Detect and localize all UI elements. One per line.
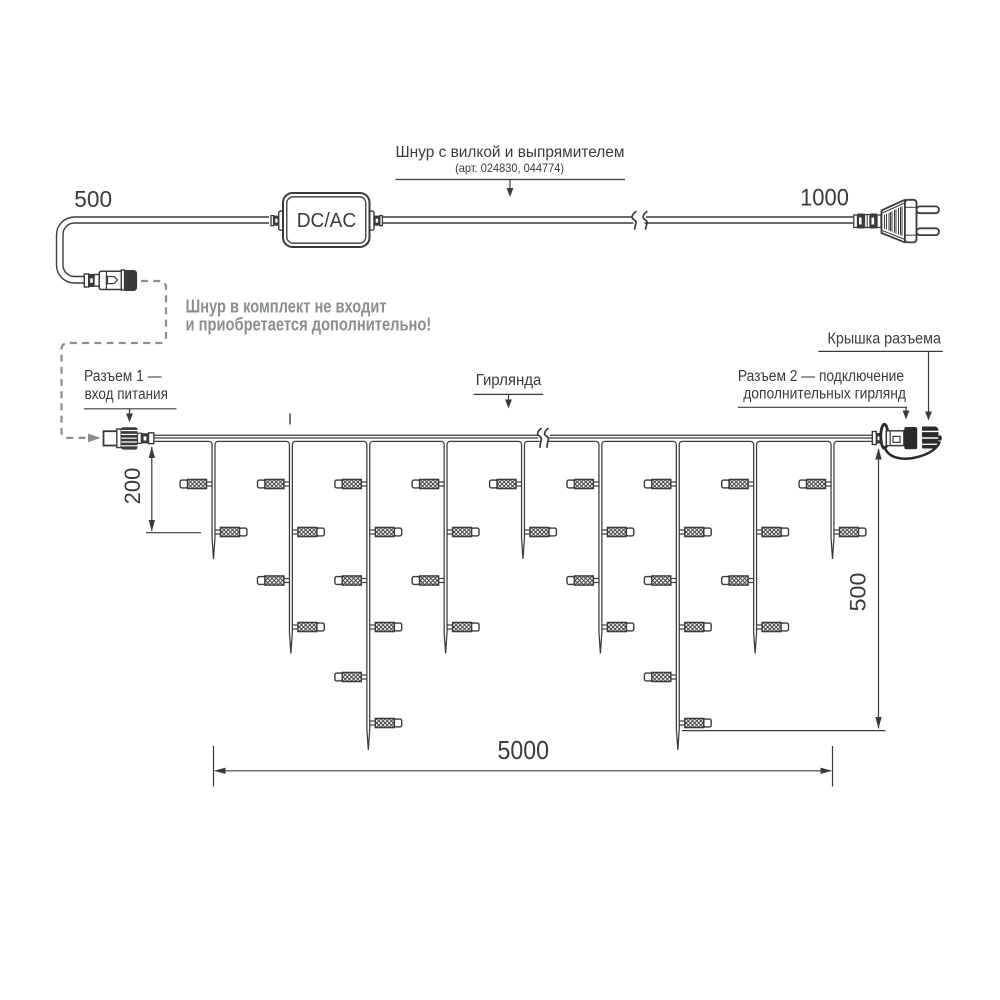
svg-text:Шнур в комплект не входит: Шнур в комплект не входит (186, 297, 387, 317)
svg-text:1000: 1000 (800, 184, 849, 211)
svg-text:Разъем 1 —: Разъем 1 — (84, 368, 162, 385)
svg-text:Гирлянда: Гирлянда (476, 372, 542, 389)
svg-text:и приобретается дополнительно!: и приобретается дополнительно! (186, 315, 432, 335)
svg-text:Крышка разъема: Крышка разъема (828, 330, 942, 347)
svg-text:дополнительных гирлянд: дополнительных гирлянд (743, 386, 906, 403)
svg-text:500: 500 (74, 186, 112, 212)
svg-text:Шнур с вилкой и выпрямителем: Шнур с вилкой и выпрямителем (396, 144, 625, 161)
svg-text:500: 500 (845, 573, 870, 612)
svg-text:200: 200 (120, 468, 145, 505)
svg-text:Разъем 2 — подключение: Разъем 2 — подключение (738, 368, 904, 385)
svg-text:вход питания: вход питания (85, 386, 168, 403)
svg-text:(арт. 024830, 044774): (арт. 024830, 044774) (455, 161, 564, 175)
svg-text:5000: 5000 (498, 735, 550, 765)
svg-text:DC/AC: DC/AC (297, 210, 357, 232)
